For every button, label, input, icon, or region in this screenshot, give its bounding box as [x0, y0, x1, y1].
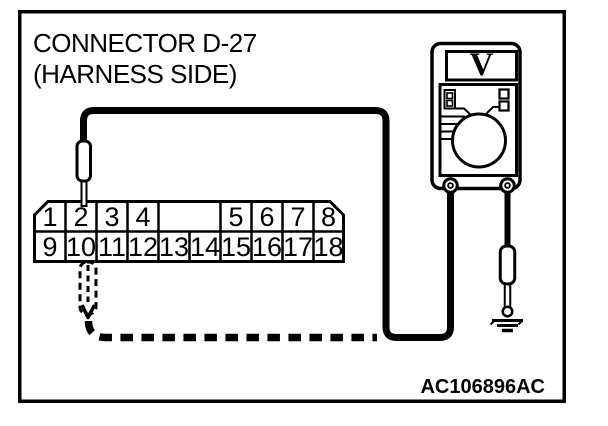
pin-label-3: 3: [104, 202, 119, 232]
battery-indicator-icon: [445, 90, 456, 109]
ground-probe-tip: [505, 284, 511, 308]
pin-label-1: 1: [42, 202, 57, 232]
pin-label-5: 5: [228, 202, 243, 232]
figure-title: CONNECTOR D-27 (HARNESS SIDE): [33, 28, 257, 90]
indicator-square-bottom-icon: [500, 102, 509, 111]
pin-label-12: 12: [128, 232, 158, 262]
pin-label-7: 7: [290, 202, 305, 232]
pin-label-10: 10: [66, 232, 96, 262]
pin-label-15: 15: [221, 232, 251, 262]
indicator-square-top-icon: [500, 90, 509, 99]
pin-label-13: 13: [159, 232, 189, 262]
pin-label-17: 17: [283, 232, 313, 262]
figure-title-line2: (HARNESS SIDE): [33, 59, 257, 90]
diagram-canvas: 1 2 3 4 5 6 7 8 9 10 11 12 13 14 15 16 1…: [0, 0, 608, 426]
ground-probe-body: [500, 246, 515, 284]
probe-pin2-body: [77, 141, 91, 181]
voltmeter-terminal-right: [501, 179, 515, 193]
pin-label-16: 16: [252, 232, 282, 262]
pin-label-11: 11: [98, 232, 126, 262]
ground-probe-ring: [503, 307, 513, 317]
pin-label-6: 6: [259, 202, 274, 232]
pin-label-4: 4: [135, 202, 150, 232]
figure-title-line1: CONNECTOR D-27: [33, 28, 257, 59]
pin-label-14: 14: [190, 232, 220, 262]
probe-pin2-tip: [82, 180, 87, 206]
figure-code: AC106896AC: [420, 376, 545, 399]
pin-label-18: 18: [313, 232, 343, 262]
rotary-dial-icon: [453, 114, 506, 167]
connector-d27: 1 2 3 4 5 6 7 8 9 10 11 12 13 14 15 16 1…: [35, 202, 344, 263]
voltmeter-terminal-left: [444, 179, 458, 193]
pin-label-8: 8: [321, 202, 336, 232]
voltmeter-display-label: V: [470, 47, 494, 83]
pin-label-9: 9: [42, 232, 57, 262]
